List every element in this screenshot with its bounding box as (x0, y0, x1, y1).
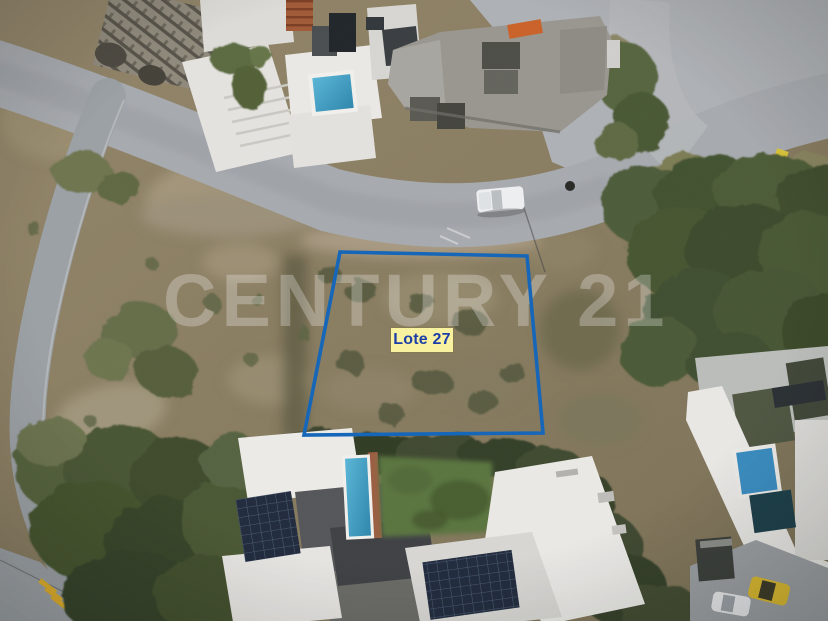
aerial-scene: CENTURY 21 (0, 0, 828, 621)
lot-label-text: Lote 27 (393, 331, 450, 349)
lot-label: Lote 27 (391, 328, 453, 352)
vignette-overlay (0, 0, 828, 621)
aerial-photo: CENTURY 21 Lote 27 (0, 0, 828, 621)
